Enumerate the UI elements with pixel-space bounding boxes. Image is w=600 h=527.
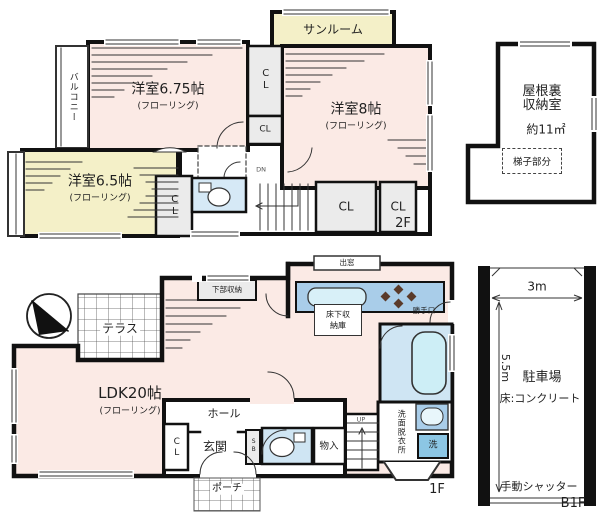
label-balcony: バルコニー bbox=[67, 72, 76, 122]
attic-window-right bbox=[590, 96, 598, 132]
label-bedroom675-flooring: (フローリング) bbox=[137, 102, 198, 111]
bathroom-window bbox=[448, 334, 456, 372]
label-closet-b: CL bbox=[259, 125, 270, 134]
label-sunroom: サンルーム bbox=[303, 24, 363, 37]
label-washroom: 洗面脱衣所 bbox=[397, 410, 405, 455]
label-parking-width: 3m bbox=[527, 281, 546, 294]
label-bedroom8-flooring: (フローリング) bbox=[325, 122, 386, 131]
attic-window bbox=[518, 40, 572, 48]
toilet-bowl-icon bbox=[208, 188, 230, 206]
label-back-door: 勝手口 bbox=[413, 307, 436, 315]
window-above-storage bbox=[206, 274, 250, 282]
label-basement: B1F bbox=[561, 497, 586, 511]
floorplan-drawing bbox=[0, 0, 600, 527]
corner-ticks bbox=[492, 268, 582, 276]
label-entrance: 玄関 bbox=[203, 441, 227, 454]
label-parking: 駐車場 bbox=[522, 371, 561, 385]
label-closet-d: CL bbox=[338, 201, 353, 214]
label-bay-window: 出窓 bbox=[340, 259, 355, 267]
label-closet-1f: CL bbox=[171, 437, 180, 459]
back-door-gap bbox=[448, 300, 456, 324]
label-closet-c: CL bbox=[169, 194, 180, 218]
label-down: DN bbox=[256, 167, 266, 174]
label-bedroom8: 洋室8帖 bbox=[331, 103, 382, 118]
north-arrow-icon bbox=[27, 294, 71, 338]
toilet-bowl-icon-1f bbox=[270, 438, 294, 457]
toilet-tank-icon bbox=[199, 183, 211, 192]
ldk-hall-opening bbox=[250, 396, 294, 404]
parking-wall-left bbox=[478, 266, 490, 506]
underfloor-storage-box: 床下収 納庫 bbox=[314, 304, 362, 336]
label-storage: 物入 bbox=[319, 442, 338, 452]
vanity-sink-icon bbox=[421, 408, 443, 425]
label-terrace: テラス bbox=[100, 323, 140, 336]
label-parking-floor: 床:コンクリート bbox=[500, 393, 581, 405]
label-ldk: LDK20帖 bbox=[98, 386, 162, 402]
toilet-tank-icon-1f bbox=[294, 433, 305, 442]
label-shutter: 手動シャッター bbox=[501, 481, 578, 493]
bathtub-icon bbox=[412, 332, 446, 394]
label-bedroom65: 洋室6.5帖 bbox=[68, 175, 132, 190]
label-parking-depth: 5.5m bbox=[499, 354, 511, 382]
label-floor1: 1F bbox=[429, 483, 445, 497]
label-floor2: 2F bbox=[395, 217, 411, 231]
label-underfloor-1: 床下収 bbox=[326, 309, 350, 320]
label-underfloor-2: 納庫 bbox=[330, 320, 346, 331]
label-attic-name2: 収納室 bbox=[522, 99, 561, 113]
floor1-plan bbox=[10, 256, 456, 511]
label-bedroom65-flooring: (フローリング) bbox=[69, 194, 130, 203]
label-attic-name1: 屋根裏 bbox=[522, 85, 561, 99]
label-ldk-flooring: (フローリング) bbox=[99, 407, 160, 416]
attic-plan bbox=[468, 40, 598, 202]
label-ladder: 梯子部分 bbox=[513, 154, 551, 168]
basement-plan bbox=[478, 266, 596, 506]
floorplan-canvas: サンルーム 洋室6.75帖 (フローリング) バルコニー CL 洋室8帖 (フロ… bbox=[0, 0, 600, 527]
label-shoe-box: SB bbox=[250, 438, 256, 454]
label-bedroom675: 洋室6.75帖 bbox=[131, 83, 204, 98]
label-closet-e: CL bbox=[390, 201, 405, 214]
label-attic-area: 約11㎡ bbox=[526, 124, 565, 137]
label-lower-storage: 下部収納 bbox=[212, 286, 242, 294]
parking-wall-right bbox=[584, 266, 596, 506]
label-hall: ホール bbox=[208, 408, 241, 420]
label-washer: 洗 bbox=[428, 441, 437, 450]
label-up: UP bbox=[357, 417, 366, 424]
ladder-area-box: 梯子部分 bbox=[502, 148, 562, 174]
label-closet-a: CL bbox=[260, 68, 271, 92]
dimension-3m bbox=[492, 295, 582, 301]
label-porch: ポーチ bbox=[210, 484, 244, 495]
